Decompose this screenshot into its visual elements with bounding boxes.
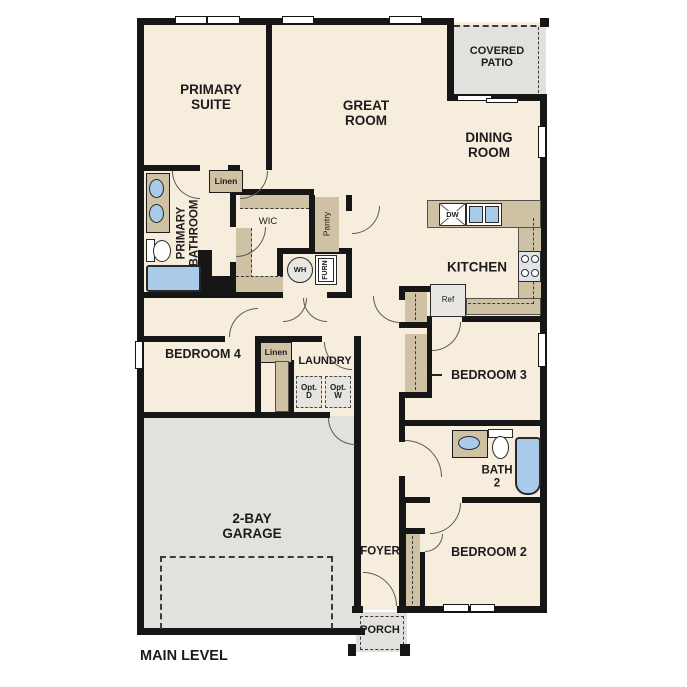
- plumbing-chase: [275, 361, 289, 412]
- wall: [137, 628, 365, 635]
- kitchen-counter: [466, 298, 541, 315]
- wic-shelving: [240, 195, 309, 209]
- sink-basin-icon: [149, 204, 164, 223]
- toilet-icon: [492, 436, 509, 459]
- room-label-wic: WIC: [259, 217, 277, 227]
- sink-basin-icon: [485, 206, 499, 223]
- patio-dashed-edge: [538, 27, 539, 93]
- room-label-kitchen: KITCHEN: [447, 261, 507, 276]
- refrigerator-label: Ref: [442, 296, 454, 304]
- window: [470, 604, 495, 612]
- window: [538, 126, 546, 158]
- burner-icon: [531, 255, 539, 263]
- wall: [346, 248, 352, 298]
- garage-door-dashed: [160, 556, 333, 629]
- plan-title: MAIN LEVEL: [140, 648, 228, 664]
- wic-shelving: [236, 276, 283, 292]
- water-heater: WH: [287, 257, 313, 283]
- closet-rod-line: [412, 536, 413, 604]
- window: [538, 333, 546, 367]
- water-heater-label: WH: [294, 266, 307, 274]
- wall: [140, 412, 330, 418]
- window: [175, 16, 207, 24]
- wall: [399, 476, 405, 497]
- window: [135, 341, 143, 369]
- opt-dryer-label: Opt. D: [301, 384, 317, 401]
- wall: [447, 18, 454, 101]
- burner-icon: [531, 269, 539, 277]
- wall: [399, 398, 405, 420]
- sink-basin-icon: [458, 436, 480, 450]
- coat-closet-rod: [405, 292, 427, 322]
- room-label-primary-suite: PRIMARY SUITE: [180, 83, 242, 113]
- linen-hall-label: Linen: [265, 348, 288, 357]
- room-label-dining-room: DINING ROOM: [465, 131, 512, 161]
- wall: [210, 276, 238, 298]
- sink-basin-icon: [469, 206, 483, 223]
- wall: [354, 336, 361, 418]
- wall: [266, 18, 272, 170]
- optional-dryer: Opt. D: [296, 376, 322, 408]
- wall: [397, 606, 406, 613]
- burner-icon: [521, 255, 529, 263]
- label-leader-line: [431, 374, 442, 376]
- stove-icon: [518, 251, 541, 282]
- toilet-icon: [153, 240, 171, 262]
- wall: [140, 336, 225, 342]
- linen-closet-hall: Linen: [260, 342, 292, 363]
- wall: [354, 412, 361, 608]
- opt-washer-label: Opt. W: [330, 384, 346, 401]
- wall: [348, 644, 356, 656]
- optional-washer: Opt. W: [325, 376, 351, 408]
- wall: [540, 18, 549, 27]
- room-label-primary-bathroom: PRIMARY BATHROOM: [175, 200, 200, 267]
- floor-plan: Linen Linen DW Ref WH FURN Opt. D Opt. W: [0, 0, 687, 687]
- dishwasher-label: DW: [445, 211, 460, 219]
- linen-closet-upper: Linen: [209, 170, 243, 193]
- wall: [462, 316, 547, 322]
- bathtub-icon: [146, 265, 201, 292]
- room-label-foyer: FOYER: [360, 546, 400, 559]
- room-label-bedroom3: BEDROOM 3: [451, 369, 527, 383]
- bedroom2-closet-rod: [406, 534, 420, 606]
- room-label-great-room: GREAT ROOM: [343, 99, 389, 129]
- room-label-laundry: LAUNDRY: [298, 355, 351, 367]
- sink-basin-icon: [149, 179, 164, 198]
- sliding-door: [486, 98, 518, 103]
- wall: [420, 552, 425, 606]
- wall: [462, 497, 547, 503]
- room-label-garage: 2-BAY GARAGE: [222, 512, 281, 542]
- wall: [400, 644, 410, 656]
- window: [282, 16, 314, 24]
- window: [443, 604, 469, 612]
- wall: [137, 18, 144, 635]
- bathtub-icon: [515, 437, 541, 495]
- refrigerator: Ref: [430, 284, 466, 317]
- room-label-pantry: Pantry: [322, 212, 331, 237]
- furnace-label: FURN: [322, 260, 330, 279]
- wall: [399, 420, 547, 426]
- closet-rod-line: [415, 336, 416, 390]
- closet-rod-line: [415, 294, 416, 320]
- wall: [289, 360, 294, 414]
- wall: [236, 292, 283, 298]
- room-label-bath2: BATH 2: [481, 464, 512, 489]
- bedroom3-closet-rod: [405, 334, 427, 392]
- wall: [327, 292, 352, 298]
- burner-icon: [521, 269, 529, 277]
- linen-upper-label: Linen: [215, 177, 238, 186]
- room-label-bedroom2: BEDROOM 2: [451, 546, 527, 560]
- room-label-bedroom4: BEDROOM 4: [165, 348, 241, 362]
- dishwasher: DW: [439, 203, 466, 226]
- window: [207, 16, 240, 24]
- window: [389, 16, 422, 24]
- room-label-porch: PORCH: [360, 624, 400, 636]
- room-label-covered-patio: COVERED PATIO: [470, 45, 524, 69]
- upper-cabinet-line: [468, 303, 534, 304]
